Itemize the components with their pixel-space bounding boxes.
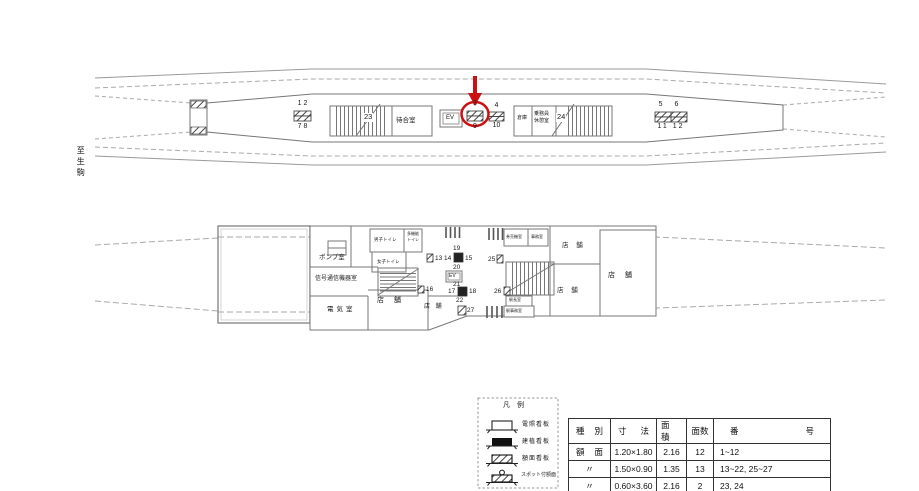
shop-label-5: 店 舗 [608, 272, 636, 280]
station-advertising-plan: 至生駒 1 2 7 8 23 待合室 EV 3 9 4 10 倉庫 乗務員 休憩… [0, 0, 919, 491]
table-row: 額 面 1.20×1.80 2.16 12 1~12 [569, 444, 831, 461]
sign-19-number: 19 [453, 245, 460, 252]
table-row: 〃 1.50×0.90 1.35 13 13~22, 25~27 [569, 461, 831, 478]
cell-count: 12 [687, 444, 714, 461]
sign-9-number: 9 [468, 123, 482, 131]
station-office-room-label: 駅事務室 [506, 309, 522, 314]
cell-dimensions: 1.50×0.90 [611, 461, 657, 478]
cell-type: 〃 [569, 461, 611, 478]
ticket-machine-room-label: 券売機室 [506, 235, 522, 240]
sign-schedule-table: 種 別 寸 法 面 積 面数 番 号 額 面 1.20×1.80 2.16 12… [568, 418, 831, 491]
cell-count: 2 [687, 478, 714, 491]
sign-22-number: 22 [456, 297, 463, 304]
shop-label-1: 店 舗 [377, 297, 405, 305]
electric-room-label: 電気室 [327, 306, 356, 313]
mens-toilet-label: 男子トイレ [374, 237, 397, 242]
sign-18-number: 18 [469, 288, 476, 295]
shop-label-4: 店 舗 [557, 287, 581, 294]
womens-toilet-label: 女子トイレ [377, 259, 400, 264]
sign-7-8-number: 7 8 [293, 123, 312, 131]
cell-numbers: 13~22, 25~27 [714, 461, 831, 478]
cell-area: 1.35 [657, 461, 687, 478]
cell-dimensions: 0.60×3.60 [611, 478, 657, 491]
stair-sign-23-number: 23 [363, 113, 373, 122]
platform-level-drawing [95, 69, 886, 165]
sign-10-number: 10 [489, 122, 504, 130]
signal-comm-room-label: 信号通信機器室 [315, 276, 357, 283]
col-header-count: 面数 [687, 419, 714, 444]
office-room-label: 事務室 [531, 235, 543, 240]
cell-numbers: 1~12 [714, 444, 831, 461]
shop-label-2: 店 舗 [424, 304, 444, 311]
col-header-type: 種 別 [569, 419, 611, 444]
sign-20-number: 20 [453, 264, 460, 271]
sign-17-number: 17 [448, 288, 455, 295]
storage-room-label: 倉庫 [517, 116, 527, 122]
sign-11-12-number: 11 12 [653, 123, 689, 131]
col-header-dimensions: 寸 法 [611, 419, 657, 444]
direction-label: 至生駒 [76, 146, 85, 179]
table-header-row: 種 別 寸 法 面 積 面数 番 号 [569, 419, 831, 444]
sign-16-number: 16 [426, 286, 433, 293]
table-row: 〃 0.60×3.60 2.16 2 23, 24 [569, 478, 831, 491]
crew-room-label-line2: 休憩室 [534, 119, 549, 125]
sign-27-number: 27 [467, 307, 474, 314]
sign-4-number: 4 [489, 102, 504, 110]
cell-type: 〃 [569, 478, 611, 491]
sign-25-number: 25 [488, 256, 495, 263]
cell-type: 額 面 [569, 444, 611, 461]
multi-toilet-label-line2: トイレ [407, 238, 419, 243]
sign-3-number-highlighted: 3 [468, 100, 482, 108]
cell-numbers: 23, 24 [714, 478, 831, 491]
crew-room-label-line1: 乗務員 [534, 112, 549, 118]
col-header-numbers: 番 号 [714, 419, 831, 444]
col-header-area: 面 積 [657, 419, 687, 444]
cell-area: 2.16 [657, 478, 687, 491]
sign-1-2-number: 1 2 [293, 100, 312, 108]
sign-14-number: 14 [444, 255, 451, 262]
cell-count: 13 [687, 461, 714, 478]
stair-sign-24-number: 24 [556, 113, 566, 122]
legend-item-spot-face-board: スポット付額面 [521, 473, 556, 479]
multi-toilet-label-line1: 多機能 [407, 232, 419, 237]
concourse-level-drawing [95, 226, 886, 330]
legend-item-illuminated-sign: 電照看板 [522, 422, 550, 429]
legend-item-face-board: 額面看板 [522, 456, 550, 463]
legend-item-standing-sign: 建植看板 [522, 439, 550, 446]
cell-area: 2.16 [657, 444, 687, 461]
sign-15-number: 15 [465, 255, 472, 262]
waiting-room-label: 待合室 [396, 117, 416, 124]
pump-room-label: ポンプ室 [319, 254, 345, 261]
concourse-elevator-label: EV [449, 274, 456, 280]
station-master-room-label: 駅長室 [509, 298, 521, 303]
cell-dimensions: 1.20×1.80 [611, 444, 657, 461]
sign-26-number: 26 [494, 288, 501, 295]
platform-elevator-label: EV [446, 115, 454, 122]
legend-title: 凡 例 [503, 402, 524, 410]
shop-label-3: 店 舗 [562, 242, 586, 249]
sign-5-6-number: 5 6 [655, 101, 687, 109]
sign-13-number: 13 [435, 255, 442, 262]
